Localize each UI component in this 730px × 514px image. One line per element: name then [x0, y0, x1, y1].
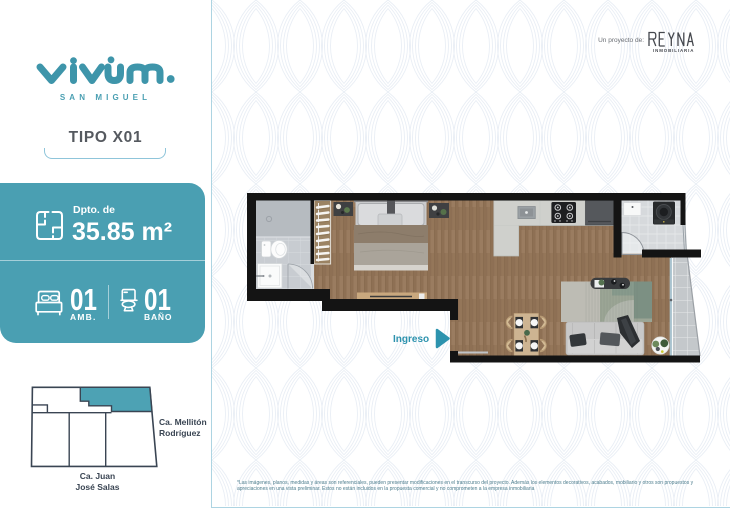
svg-text:Ingreso: Ingreso	[393, 334, 429, 345]
